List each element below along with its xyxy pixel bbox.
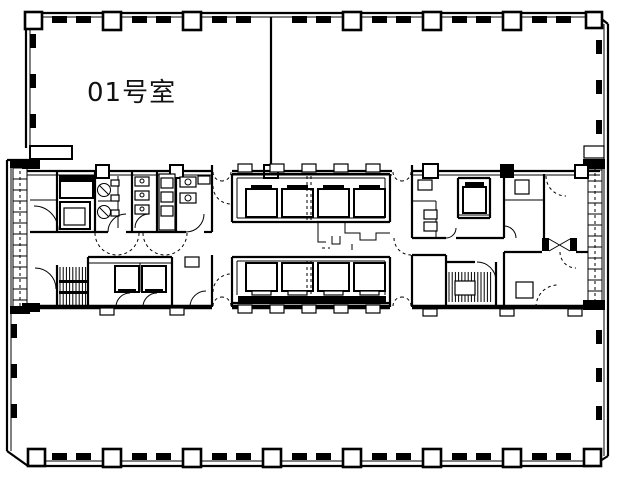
facade-column: [103, 12, 121, 30]
wall-tick: [238, 164, 252, 172]
stair-rail: [455, 281, 475, 295]
door-swing-arc: [402, 172, 411, 181]
toilet-icon: [99, 207, 109, 217]
door-swing-arc: [35, 268, 56, 289]
sink-icon: [111, 210, 119, 216]
elevator-lobby: [318, 222, 390, 250]
elevator-car: [282, 189, 313, 217]
door-swing-arc: [477, 262, 496, 281]
window-mullion: [30, 114, 36, 128]
window-mullion: [236, 453, 251, 460]
utility-box: [516, 282, 533, 298]
wall-cap: [22, 160, 40, 169]
elevator-door: [288, 291, 307, 295]
window-mullion: [52, 453, 67, 460]
restrooms-east: [418, 180, 456, 238]
window-mullion: [596, 330, 602, 344]
stairwell-west: [35, 265, 88, 307]
stall-fixture: [198, 176, 210, 184]
wall-tick: [100, 308, 114, 315]
facade-column: [503, 449, 521, 467]
sink-icon: [418, 180, 432, 190]
window-mullion: [11, 404, 17, 418]
sink-icon: [111, 195, 119, 201]
wall-tick: [238, 305, 252, 313]
elevator-door: [145, 289, 163, 292]
corner-column: [586, 12, 602, 28]
window-mullion: [132, 453, 147, 460]
window-mullion: [316, 16, 331, 23]
floor-plan-drawing: 01号室: [0, 0, 619, 480]
facade-column: [343, 12, 361, 30]
wall-tick: [334, 164, 348, 172]
window-mullion: [212, 453, 227, 460]
window-mullion: [596, 406, 602, 420]
toilet-icon: [99, 185, 109, 195]
corner-column: [25, 12, 42, 29]
window-mullion: [30, 34, 36, 48]
window-mullion: [212, 16, 227, 23]
column-box: [423, 164, 438, 178]
wall-tick: [170, 308, 184, 315]
window-mullion: [30, 74, 36, 88]
utility-box: [185, 257, 199, 267]
door-swing-arc: [108, 214, 126, 232]
window-mullion: [372, 453, 387, 460]
window-mullion: [396, 16, 411, 23]
fire-escape-balcony-east: [583, 159, 605, 310]
window-mullion: [452, 16, 467, 23]
window-mullion: [132, 16, 147, 23]
wall-tick: [270, 305, 284, 313]
door-swing-arc: [213, 297, 222, 306]
stairwell-east: [446, 262, 496, 307]
sink-icon: [111, 180, 119, 186]
window-mullion: [11, 364, 17, 378]
window-mullion: [532, 453, 547, 460]
elevator-car: [246, 189, 277, 217]
elevator-car: [115, 266, 139, 292]
wall-tick: [302, 305, 316, 313]
door-swing-arc: [213, 274, 231, 292]
corner-column: [584, 449, 601, 466]
duct-cell: [161, 178, 173, 188]
wall-cap: [22, 303, 40, 312]
door-swing-arc: [95, 233, 117, 255]
elevator-door: [287, 185, 308, 190]
shaft-back-wall: [238, 296, 386, 302]
door-swing-arc: [393, 172, 402, 181]
door-swing-arc: [402, 297, 411, 306]
urinal-icon: [135, 177, 149, 186]
door-swing-arc: [394, 238, 411, 255]
corner-column: [28, 449, 45, 466]
fire-escape-balcony-west: [10, 160, 30, 314]
elevator-car: [354, 263, 385, 291]
elevator-door: [324, 291, 343, 295]
wall-tick: [366, 164, 380, 172]
outer-wall: [7, 451, 28, 466]
window-mullion: [596, 80, 602, 94]
wall-tick: [334, 305, 348, 313]
window-mullion: [76, 16, 91, 23]
stall-fixture: [424, 210, 437, 219]
facade-column: [423, 12, 441, 30]
window-mullion: [372, 16, 387, 23]
partition-wall: [264, 17, 278, 178]
door-swing-arc: [504, 226, 516, 238]
door-swing-arc: [213, 172, 222, 181]
window-mullion: [452, 453, 467, 460]
door-post: [542, 238, 549, 251]
duct-outline: [318, 222, 326, 242]
elevator-bank-north: [232, 164, 390, 222]
stall-fixture: [424, 222, 437, 231]
door-swing-arc: [222, 297, 231, 306]
door-swing-arc: [393, 297, 402, 306]
column-box: [575, 165, 588, 178]
elevator-door: [251, 185, 272, 190]
wall-tick: [270, 164, 284, 172]
room-01-label: 01号室: [87, 78, 176, 108]
door-swing-arc: [546, 176, 566, 196]
window-mullion: [476, 16, 491, 23]
wall-tick: [500, 309, 514, 316]
facade-column: [183, 12, 201, 30]
door-swing-arc: [560, 252, 576, 268]
door-swing-arc: [213, 186, 231, 204]
door-swing-arc: [536, 285, 558, 307]
floor-plan: 01号室: [0, 0, 619, 480]
window-mullion: [11, 324, 17, 338]
door-swing-arc: [446, 228, 456, 238]
window-mullion: [532, 16, 547, 23]
kitchen-sink-edge: [60, 176, 93, 182]
window-mullion: [52, 16, 67, 23]
window-mullion: [556, 453, 571, 460]
facade-column: [263, 449, 281, 467]
column-box: [96, 165, 109, 178]
elevator-car: [318, 263, 349, 291]
wall-tick: [423, 309, 437, 316]
window-mullion: [476, 453, 491, 460]
service-elevators: [88, 257, 206, 307]
elevator-door: [359, 185, 380, 190]
window-mullion: [76, 453, 91, 460]
wall-tick: [366, 305, 380, 313]
window-mullion: [236, 16, 251, 23]
door-post: [570, 238, 577, 251]
door-swing-arc: [135, 214, 149, 228]
utility-box: [515, 180, 529, 194]
door-swing-arc: [222, 172, 231, 181]
window-mullion: [556, 16, 571, 23]
window-mullion: [596, 40, 602, 54]
window-mullion: [292, 16, 307, 23]
elevator-car: [142, 266, 166, 292]
window-mullion: [396, 453, 411, 460]
elevator-door: [465, 182, 484, 186]
urinal-icon: [135, 205, 149, 214]
duct-outline: [332, 236, 340, 244]
kitchenette: [30, 176, 93, 230]
facade-column: [423, 449, 441, 467]
machine-rooms-east: [504, 180, 577, 307]
elevator-door: [252, 291, 271, 295]
door-swing-arc: [34, 206, 58, 230]
window-mullion: [316, 453, 331, 460]
room-01: 01号室: [87, 78, 176, 108]
balcony-hatch: [584, 146, 604, 158]
service-shaft-east: [458, 178, 490, 218]
facade-ledge: [30, 146, 72, 159]
elevator-car: [354, 189, 385, 217]
window-mullion: [156, 453, 171, 460]
elevator-bank-south: [232, 257, 390, 313]
window-mullion: [292, 453, 307, 460]
window-mullion: [156, 16, 171, 23]
duct-outline: [345, 222, 390, 240]
wall-tick: [568, 309, 582, 316]
door-swing-arc: [165, 233, 187, 255]
duct-cell: [161, 206, 173, 216]
kitchen-range-top: [64, 208, 85, 225]
elevator-car: [318, 189, 349, 217]
elevator-door: [360, 291, 379, 295]
stair-rail: [59, 291, 87, 294]
elevator-car: [246, 263, 277, 291]
elevator-car: [282, 263, 313, 291]
door-swing-arc: [186, 214, 204, 232]
facade-column: [103, 449, 121, 467]
wall-tick: [302, 164, 316, 172]
elevator-door: [118, 289, 136, 292]
door-swing-arc: [143, 233, 165, 255]
facade-column: [503, 12, 521, 30]
column-box: [500, 164, 514, 178]
door-swing-arc: [190, 291, 206, 307]
door-swing-arc: [117, 233, 139, 255]
restrooms-west: [98, 174, 211, 232]
urinal-icon: [135, 191, 149, 200]
stair-rail: [59, 280, 87, 283]
facade-column: [183, 449, 201, 467]
elevator-door: [323, 185, 344, 190]
elevator-car: [463, 187, 486, 213]
window-mullion: [596, 120, 602, 134]
window-mullion: [596, 368, 602, 382]
facade-column: [343, 449, 361, 467]
duct-cell: [161, 192, 173, 202]
